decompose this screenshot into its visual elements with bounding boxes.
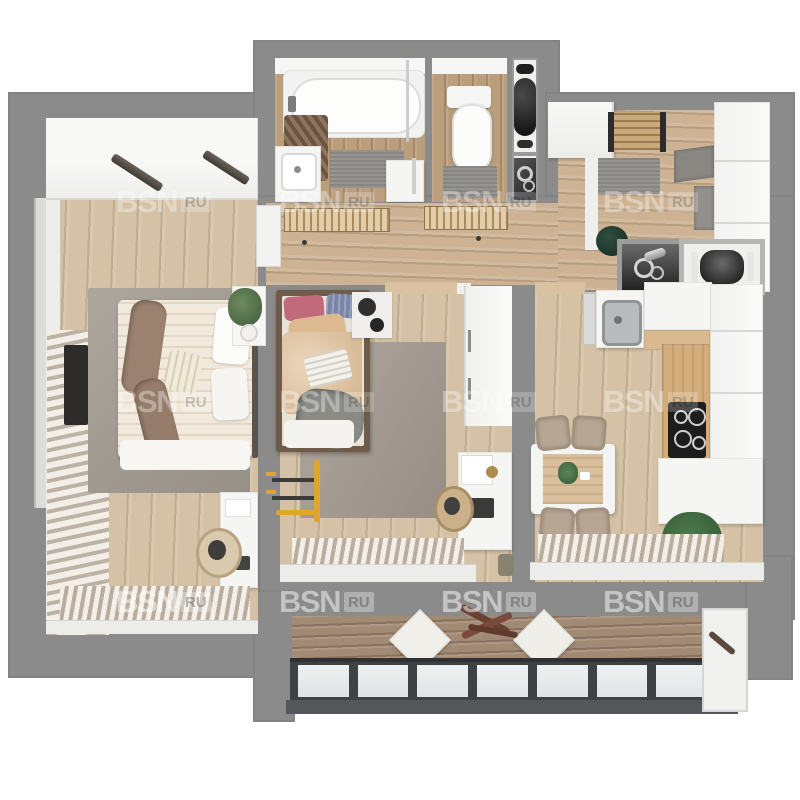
kitchen-door-opening [535,282,585,294]
plant [228,288,262,326]
burner [692,436,706,450]
wardrobe-seam [714,222,770,224]
basket [498,554,514,576]
table-dish [580,472,590,480]
floor-plan-render: BSNRU BSNRU BSNRU BSNRU BSNRU BSNRU BSNR… [0,0,800,800]
bathroom-cabinet [386,160,424,202]
hall-wardrobe-left [548,102,614,158]
cabinet-seam [710,392,763,394]
wall-peg [266,490,276,494]
door-frame [608,112,614,152]
boiler [514,78,536,136]
tall-cabinet [710,284,763,470]
boiler-cap [516,64,534,74]
door-frame [660,112,666,152]
wardrobe-handle [468,378,471,400]
drum [358,298,376,316]
glass-panel [358,665,409,697]
base-cabinet [658,458,763,524]
balcony-end-wall [702,608,748,712]
dining-chair [534,414,571,451]
burner [674,410,688,424]
toilet-mat [443,166,497,198]
tv [64,345,88,425]
boiler-valve [517,140,533,148]
toilet-bowl [452,104,492,172]
balcony-bottom-rim [286,700,738,714]
kitchen-door-leaf [583,293,596,345]
wall-bar [272,496,320,500]
burner [688,408,706,426]
wall-bar [272,478,320,482]
basin-dark [700,250,744,284]
shaft-divider [512,152,538,156]
burner [674,430,692,448]
doormat [598,158,660,194]
plant-pot [240,324,258,342]
kitchen-sink [602,300,642,346]
coat-rack [674,145,714,183]
glass-panel [477,665,528,697]
wardrobe-handle [468,330,471,352]
pillow [211,367,250,421]
toilet-wall-face [432,58,507,74]
shower-glass [406,60,409,142]
bedroom-window-sill [46,620,258,634]
entrance-door [614,112,660,150]
glass-panel [417,665,468,697]
coat-rack [694,186,714,230]
wood-slat-mat [284,208,390,232]
pipe [523,180,535,192]
bathtub-faucet [288,96,296,112]
bedroom-door-open [256,205,281,267]
niche-handle [747,252,754,282]
kitchen-window-sill [530,562,764,580]
table-plant [558,462,578,484]
sink-faucet [294,166,301,173]
kitchen-faucet [614,316,622,324]
pipe [650,266,664,280]
wood-slat-mat [424,206,508,230]
door-stopper [302,240,307,245]
desk-chair-seat [208,540,226,560]
balcony-glazing [290,658,715,704]
bed-sheet [120,440,250,470]
drum [370,318,384,332]
kids-chair-seat [444,497,460,515]
glass-panel [597,665,648,697]
wardrobe-seam [714,160,770,162]
towel-rail [412,158,416,194]
wall-bar-yellow [276,510,320,515]
niche-handle [691,252,698,282]
kids-window-sill [280,564,476,582]
dining-chair [571,415,607,451]
kids-wardrobe [464,286,512,426]
glass-panel [537,665,588,697]
cabinet-seam [710,330,763,332]
glass-panel [656,665,707,697]
kids-door-opening [385,282,457,294]
wall-peg [266,472,276,476]
desk-lamp [486,466,498,478]
glass-panel [298,665,349,697]
kids-bed-sheet [284,420,354,448]
upper-cabinets [644,282,712,330]
desk-papers [226,500,250,516]
door-stopper [476,236,481,241]
bedroom-window-blinds [60,586,250,624]
